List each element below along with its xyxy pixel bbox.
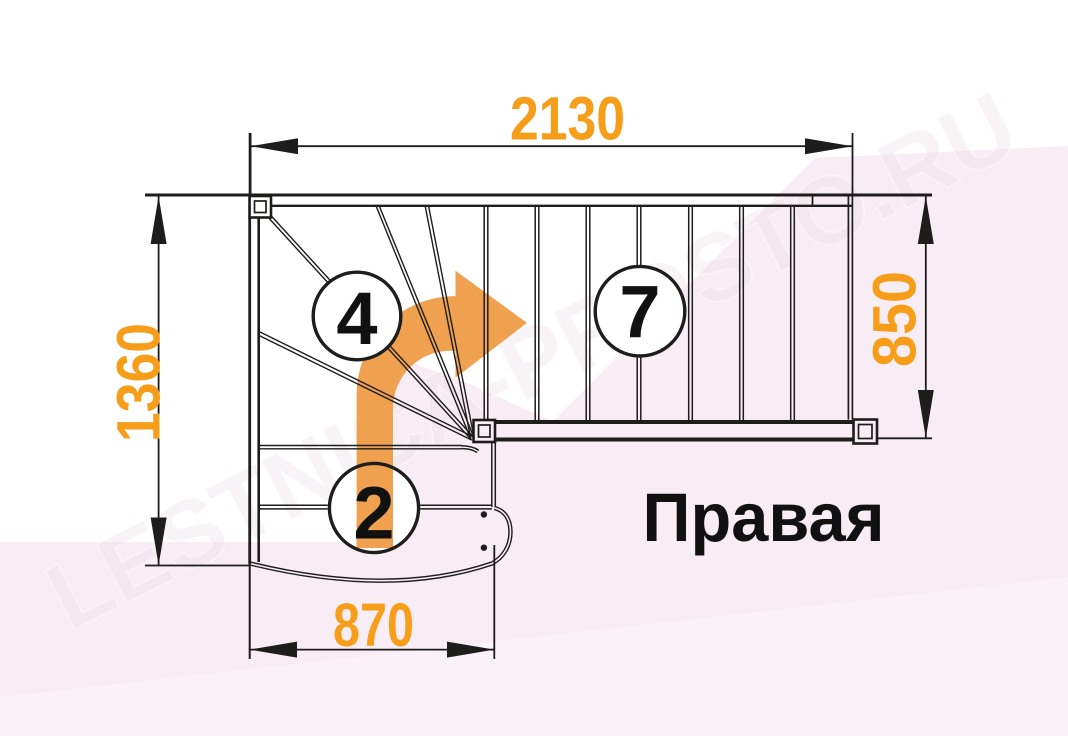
svg-text:850: 850 <box>861 271 929 367</box>
svg-text:Правая: Правая <box>643 479 885 556</box>
svg-text:7: 7 <box>619 270 660 353</box>
svg-text:1360: 1360 <box>105 323 173 442</box>
svg-text:2: 2 <box>353 472 394 555</box>
svg-text:2130: 2130 <box>510 85 625 153</box>
svg-text:4: 4 <box>336 277 377 360</box>
svg-text:870: 870 <box>333 591 414 659</box>
